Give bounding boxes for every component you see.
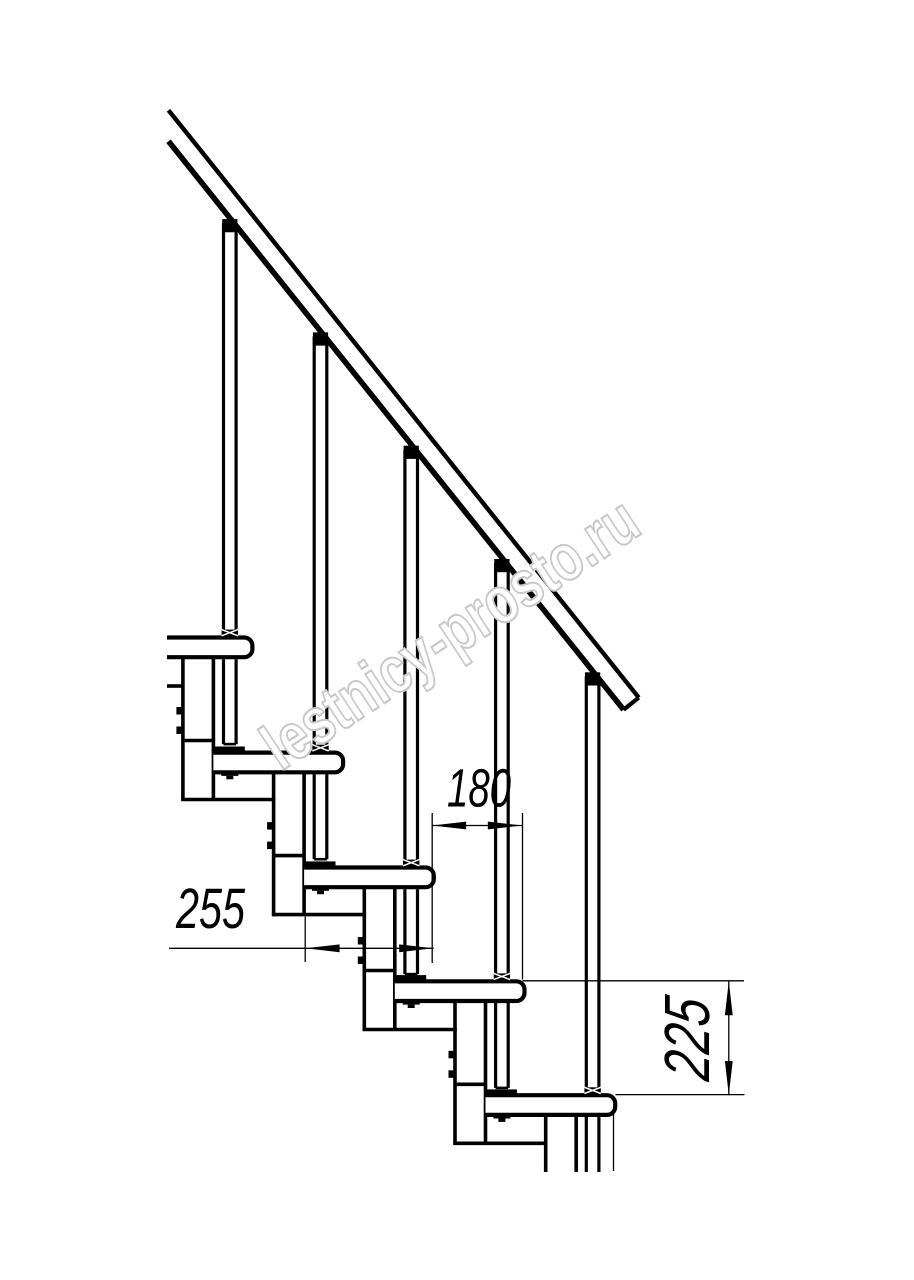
- svg-text:255: 255: [175, 877, 245, 941]
- svg-text:225: 225: [651, 992, 723, 1085]
